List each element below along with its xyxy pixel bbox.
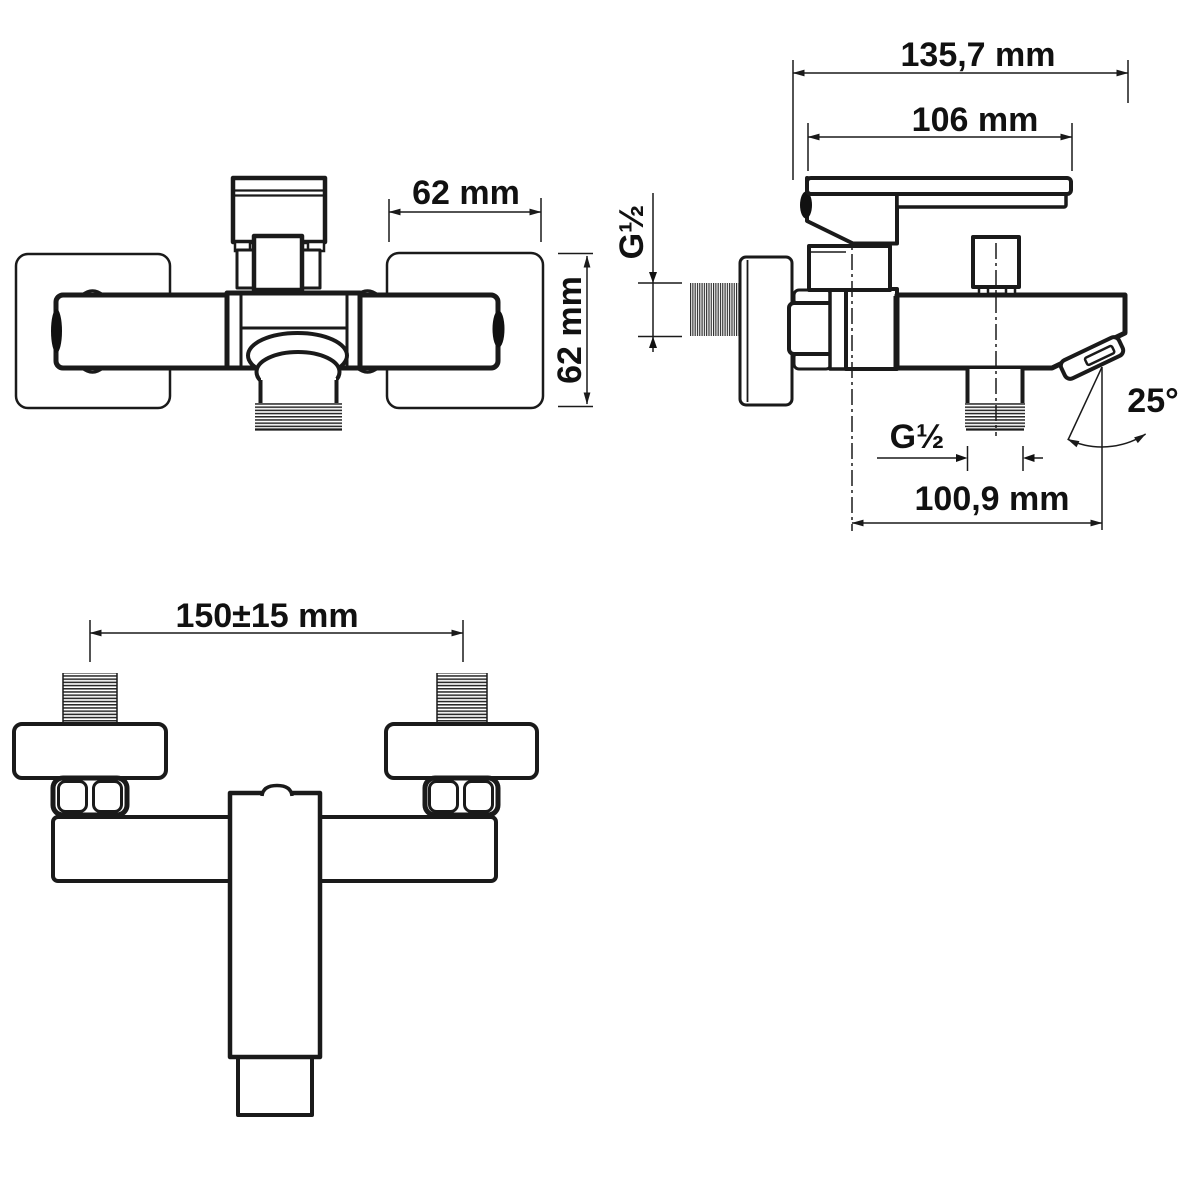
inlet-thread-right xyxy=(437,673,487,723)
inlet-thread-side-view xyxy=(690,283,739,336)
dim-plate-height-label: 62 mm xyxy=(551,276,589,384)
body-end-cap-left xyxy=(51,309,62,353)
faucet-technical-drawing: 62 mm 62 mm xyxy=(0,0,1200,1200)
dim-inlet-thread-label: G½ xyxy=(613,205,651,260)
front-view: 150±15 mm xyxy=(14,597,537,1115)
outlet-thread-side-view xyxy=(965,403,1025,428)
dim-inlet-spacing-label: 150±15 mm xyxy=(175,597,358,635)
dim-spout-reach-label: 100,9 mm xyxy=(915,480,1070,518)
top-view: 62 mm 62 mm xyxy=(16,174,593,430)
dimension-inlet-thread: G½ xyxy=(613,193,682,352)
dim-overall-depth-label: 135,7 mm xyxy=(901,36,1056,74)
cartridge-cover xyxy=(254,236,302,290)
lever-handle-side-view xyxy=(807,178,1071,194)
hex-nut-left xyxy=(53,778,127,815)
inlet-thread-left xyxy=(63,673,117,723)
dimension-handle-length: 106 mm xyxy=(808,101,1072,171)
dim-plate-width-label: 62 mm xyxy=(412,174,520,212)
valve-housing-side-view xyxy=(846,289,897,369)
dimension-spout-reach: 100,9 mm xyxy=(852,480,1102,523)
dimension-plate-height: 62 mm xyxy=(551,254,593,407)
shower-outlet-thread-top-view xyxy=(255,403,342,428)
spout-column-front-view xyxy=(230,793,320,1057)
dim-outlet-thread-label: G½ xyxy=(890,418,945,456)
body-end-cap-right xyxy=(493,311,505,348)
side-view: 135,7 mm 106 mm G½ G½ 100,9 mm xyxy=(613,36,1179,531)
technical-drawing-page: 62 mm 62 mm xyxy=(0,0,1200,1200)
hex-nut-right xyxy=(425,778,498,815)
dimension-plate-width: 62 mm xyxy=(389,174,541,242)
lever-handle-top-view xyxy=(233,178,325,242)
handle-screw-dome xyxy=(262,786,292,797)
eccentric-cover-left xyxy=(14,724,166,778)
dim-handle-length-label: 106 mm xyxy=(912,101,1039,139)
dimension-spout-angle: 25° xyxy=(1068,367,1179,530)
eccentric-cover-right xyxy=(386,724,537,778)
spout-outlet-front-view xyxy=(238,1056,312,1115)
dimension-inlet-spacing: 150±15 mm xyxy=(90,597,463,662)
dim-spout-angle-label: 25° xyxy=(1127,382,1178,420)
